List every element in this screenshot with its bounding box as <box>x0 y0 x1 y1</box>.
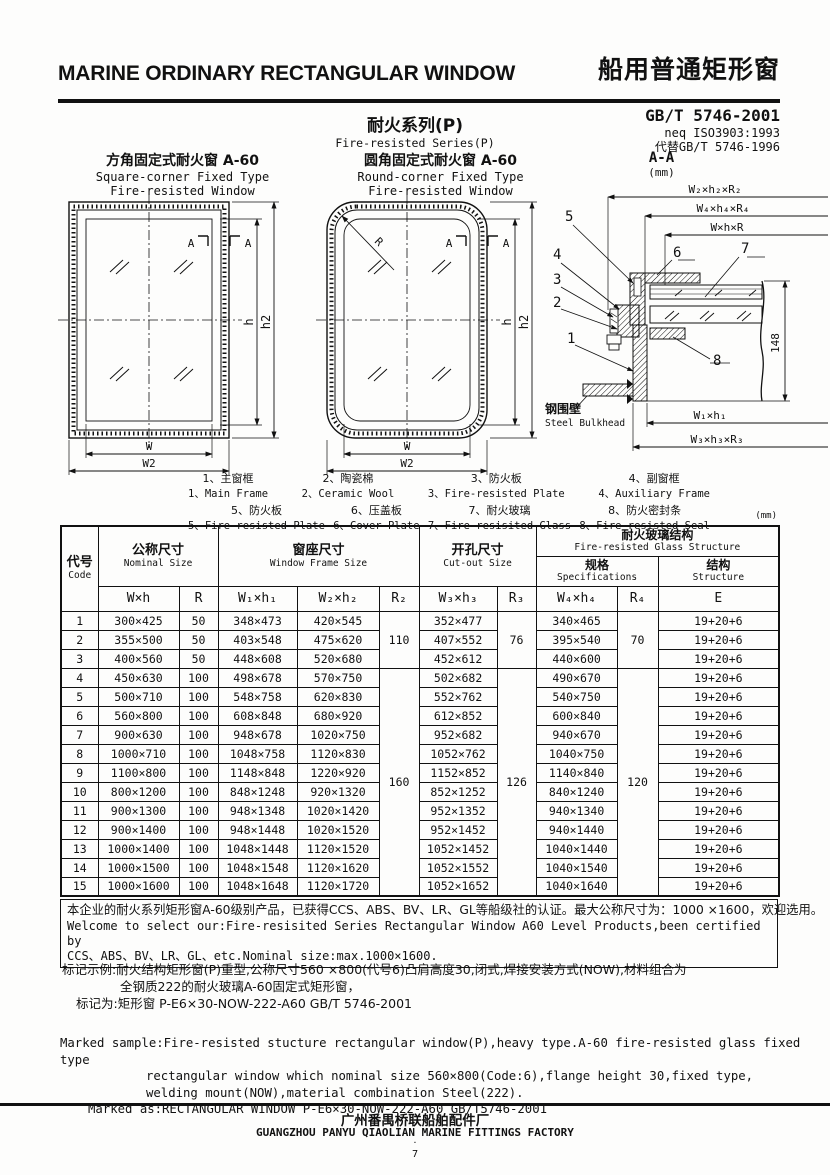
legend-item: 2、陶瓷棉2、Ceramic Wool <box>302 470 395 501</box>
svg-text:8: 8 <box>713 353 721 369</box>
svg-text:A: A <box>245 237 252 250</box>
table-cell: 612×852 <box>419 706 497 725</box>
col-header-structure: 结构 Structure <box>658 556 779 586</box>
table-cell: 448×608 <box>218 649 297 668</box>
legend-item: 4、副窗框4、Auxiliary Frame <box>598 470 710 501</box>
table-cell: 100 <box>179 839 218 858</box>
table-cell: 19+20+6 <box>658 668 779 687</box>
svg-text:A: A <box>188 237 195 250</box>
round-window-drawing: R A A h h2 <box>318 198 563 478</box>
page-title-cn: 船用普通矩形窗 <box>598 50 780 86</box>
table-cell: 452×612 <box>419 649 497 668</box>
table-cell: 4 <box>61 668 98 687</box>
svg-text:W: W <box>404 440 411 453</box>
table-cell: 395×540 <box>536 630 617 649</box>
table-cell: 100 <box>179 782 218 801</box>
col-w1h1: W₁×h₁ <box>218 586 297 611</box>
table-cell: 948×1448 <box>218 820 297 839</box>
table-cell: 126 <box>497 668 536 896</box>
table-cell: 352×477 <box>419 611 497 630</box>
table-cell: 1000×1500 <box>98 858 179 877</box>
series-title: 耐火系列(P) Fire-resisted Series(P) <box>0 111 830 150</box>
steel-bulkhead-label: 钢围壁 Steel Bulkhead <box>545 396 625 429</box>
table-cell: 10 <box>61 782 98 801</box>
table-cell: 440×600 <box>536 649 617 668</box>
table-cell: 1120×830 <box>297 744 379 763</box>
table-row: 91100×8001001148×8481220×9201152×8521140… <box>61 763 779 782</box>
table-cell: 1040×1640 <box>536 877 617 896</box>
col-w4h4: W₄×h₄ <box>536 586 617 611</box>
table-cell: 1220×920 <box>297 763 379 782</box>
table-cell: 14 <box>61 858 98 877</box>
table-cell: 100 <box>179 801 218 820</box>
table-cell: 348×473 <box>218 611 297 630</box>
square-window-title-cn: 方角固定式耐火窗 A-60 <box>60 150 305 170</box>
table-cell: 852×1252 <box>419 782 497 801</box>
svg-text:A: A <box>503 237 510 250</box>
svg-text:1: 1 <box>567 331 575 347</box>
table-cell: 1020×750 <box>297 725 379 744</box>
table-cell: 19+20+6 <box>658 820 779 839</box>
table-row: 11900×1300100948×13481020×1420952×135294… <box>61 801 779 820</box>
table-cell: 1048×1648 <box>218 877 297 896</box>
square-window-drawing: A A h h2 W W2 <box>60 198 305 478</box>
table-cell: 1048×1548 <box>218 858 297 877</box>
table-row: 12900×1400100948×14481020×1520952×145294… <box>61 820 779 839</box>
table-cell: 940×1340 <box>536 801 617 820</box>
table-cell: 1120×1520 <box>297 839 379 858</box>
table-cell: 50 <box>179 630 218 649</box>
table-cell: 1048×758 <box>218 744 297 763</box>
svg-text:W₂×h₂×R₂: W₂×h₂×R₂ <box>689 183 742 196</box>
table-cell: 900×1400 <box>98 820 179 839</box>
table-row: 141000×15001001048×15481120×16201052×155… <box>61 858 779 877</box>
table-cell: 1020×1520 <box>297 820 379 839</box>
table-cell: 940×670 <box>536 725 617 744</box>
col-r4: R₄ <box>617 586 658 611</box>
table-cell: 1120×1620 <box>297 858 379 877</box>
table-cell: 120 <box>617 668 658 896</box>
glass-symbol <box>110 260 193 381</box>
size-table: 代号 Code 公称尺寸 Nominal Size 窗座尺寸 Window Fr… <box>60 525 780 897</box>
col-w3h3: W₃×h₃ <box>419 586 497 611</box>
col-header-nominal: 公称尺寸 Nominal Size <box>98 526 218 586</box>
table-cell: 952×1352 <box>419 801 497 820</box>
table-cell: 3 <box>61 649 98 668</box>
section-unit: (mm) <box>545 166 778 179</box>
table-cell: 2 <box>61 630 98 649</box>
svg-text:Steel Bulkhead: Steel Bulkhead <box>545 418 625 429</box>
svg-text:A: A <box>446 237 453 250</box>
table-cell: 1100×800 <box>98 763 179 782</box>
note-line-cn: 本企业的耐火系列矩形窗A-60级别产品，已获得CCS、ABS、BV、LR、GL等… <box>67 902 771 919</box>
table-cell: 100 <box>179 706 218 725</box>
table-row: 10800×1200100848×1248920×1320852×1252840… <box>61 782 779 801</box>
col-r: R <box>179 586 218 611</box>
svg-text:h2: h2 <box>517 315 531 329</box>
table-cell: 19+20+6 <box>658 725 779 744</box>
marking-example-cn: 标记示例:耐火结构矩形窗(P)重型,公称尺寸560 ×800(代号6)凸肩高度3… <box>62 961 686 1012</box>
table-cell: 1000×1600 <box>98 877 179 896</box>
svg-text:h: h <box>242 319 256 326</box>
svg-text:钢围壁: 钢围壁 <box>545 401 581 416</box>
radius-leader: R <box>342 216 394 270</box>
svg-text:R: R <box>372 235 386 249</box>
table-cell: 620×830 <box>297 687 379 706</box>
table-cell: 19+20+6 <box>658 687 779 706</box>
header: MARINE ORDINARY RECTANGULAR WINDOW 船用普通矩… <box>58 50 780 86</box>
table-cell: 110 <box>379 611 419 668</box>
table-cell: 19+20+6 <box>658 839 779 858</box>
svg-text:W₁×h₁: W₁×h₁ <box>693 409 726 422</box>
table-row: 1300×42550348×473420×545110352×47776340×… <box>61 611 779 630</box>
svg-text:3: 3 <box>553 272 561 288</box>
table-cell: 420×545 <box>297 611 379 630</box>
section-cut-marks: A A <box>446 236 510 250</box>
svg-text:4: 4 <box>553 247 561 263</box>
table-cell: 19+20+6 <box>658 611 779 630</box>
section-drawing: W₂×h₂×R₂ W₄×h₄×R₄ W×h×R <box>545 185 830 457</box>
table-cell: 1052×1452 <box>419 839 497 858</box>
table-cell: 502×682 <box>419 668 497 687</box>
table-cell: 1 <box>61 611 98 630</box>
square-window-block: 方角固定式耐火窗 A-60 Square-corner Fixed Type F… <box>60 150 305 478</box>
col-header-cutout: 开孔尺寸 Cut-out Size <box>419 526 536 586</box>
col-header-code: 代号 Code <box>61 526 98 611</box>
table-cell: 6 <box>61 706 98 725</box>
col-e: E <box>658 586 779 611</box>
table-cell: 1052×762 <box>419 744 497 763</box>
table-cell: 952×682 <box>419 725 497 744</box>
svg-text:5: 5 <box>565 209 573 225</box>
table-cell: 848×1248 <box>218 782 297 801</box>
table-cell: 1040×750 <box>536 744 617 763</box>
table-cell: 840×1240 <box>536 782 617 801</box>
table-cell: 500×710 <box>98 687 179 706</box>
table-cell: 498×678 <box>218 668 297 687</box>
table-cell: 340×465 <box>536 611 617 630</box>
round-window-title-cn: 圆角固定式耐火窗 A-60 <box>318 150 563 170</box>
title-rule <box>58 99 780 103</box>
table-cell: 548×758 <box>218 687 297 706</box>
table-row: 6560×800100608×848680×920612×852600×8401… <box>61 706 779 725</box>
col-header-frame: 窗座尺寸 Window Frame Size <box>218 526 419 586</box>
svg-text:W₃×h₃×R₃: W₃×h₃×R₃ <box>691 433 744 446</box>
table-cell: 7 <box>61 725 98 744</box>
table-row: 151000×16001001048×16481120×17201052×165… <box>61 877 779 896</box>
catalog-page: MARINE ORDINARY RECTANGULAR WINDOW 船用普通矩… <box>0 0 830 1175</box>
table-cell: 608×848 <box>218 706 297 725</box>
legend-row-1: 1、主窗框1、Main Frame2、陶瓷棉2、Ceramic Wool3、防火… <box>188 470 710 501</box>
table-cell: 540×750 <box>536 687 617 706</box>
table-cell: 520×680 <box>297 649 379 668</box>
table-cell: 300×425 <box>98 611 179 630</box>
round-window-block: 圆角固定式耐火窗 A-60 Round-corner Fixed Type Fi… <box>318 150 563 478</box>
table-row: 7900×630100948×6781020×750952×682940×670… <box>61 725 779 744</box>
table-cell: 450×630 <box>98 668 179 687</box>
table-cell: 920×1320 <box>297 782 379 801</box>
table-cell: 1120×1720 <box>297 877 379 896</box>
table-cell: 12 <box>61 820 98 839</box>
table-cell: 1000×710 <box>98 744 179 763</box>
col-header-glass: 耐火玻璃结构 Fire-resisted Glass Structure <box>536 526 779 556</box>
table-unit-note: (mm) <box>755 511 777 521</box>
table-cell: 400×560 <box>98 649 179 668</box>
table-cell: 900×1300 <box>98 801 179 820</box>
table-cell: 940×1440 <box>536 820 617 839</box>
section-block: A-A (mm) W₂×h₂×R₂ W₄×h₄×R₄ <box>545 150 830 457</box>
table-cell: 8 <box>61 744 98 763</box>
table-cell: 100 <box>179 858 218 877</box>
table-cell: 952×1452 <box>419 820 497 839</box>
table-cell: 13 <box>61 839 98 858</box>
table-cell: 560×800 <box>98 706 179 725</box>
table-cell: 19+20+6 <box>658 649 779 668</box>
table-cell: 9 <box>61 763 98 782</box>
frame-section <box>583 273 764 404</box>
table-cell: 948×678 <box>218 725 297 744</box>
table-row: 4450×630100498×678570×750160502×68212649… <box>61 668 779 687</box>
table-cell: 100 <box>179 744 218 763</box>
dimension-w3h3r3: W₃×h₃×R₃ <box>633 403 828 451</box>
table-cell: 355×500 <box>98 630 179 649</box>
table-cell: 1148×848 <box>218 763 297 782</box>
table-cell: 70 <box>617 611 658 668</box>
col-w2h2: W₂×h₂ <box>297 586 379 611</box>
svg-text:2: 2 <box>553 295 561 311</box>
size-table-body: 1300×42550348×473420×545110352×47776340×… <box>61 611 779 896</box>
table-cell: 5 <box>61 687 98 706</box>
table-cell: 100 <box>179 877 218 896</box>
table-row: 81000×7101001048×7581120×8301052×7621040… <box>61 744 779 763</box>
table-cell: 19+20+6 <box>658 801 779 820</box>
table-cell: 1048×1448 <box>218 839 297 858</box>
table-cell: 76 <box>497 611 536 668</box>
table-cell: 100 <box>179 763 218 782</box>
table-cell: 160 <box>379 668 419 896</box>
svg-text:W×h×R: W×h×R <box>710 221 743 234</box>
table-row: 131000×14001001048×14481120×15201052×145… <box>61 839 779 858</box>
table-cell: 1040×1540 <box>536 858 617 877</box>
table-cell: 1152×852 <box>419 763 497 782</box>
table-cell: 19+20+6 <box>658 630 779 649</box>
svg-text:W2: W2 <box>142 457 155 470</box>
table-cell: 19+20+6 <box>658 763 779 782</box>
table-cell: 50 <box>179 611 218 630</box>
svg-text:h2: h2 <box>259 315 273 329</box>
svg-text:W₄×h₄×R₄: W₄×h₄×R₄ <box>697 202 750 215</box>
table-cell: 19+20+6 <box>658 744 779 763</box>
page-title-en: MARINE ORDINARY RECTANGULAR WINDOW <box>58 62 515 86</box>
table-cell: 1040×1440 <box>536 839 617 858</box>
table-row: 2355×50050403×548475×620407×552395×54019… <box>61 630 779 649</box>
section-cut-marks: A A <box>188 236 252 250</box>
table-cell: 948×1348 <box>218 801 297 820</box>
table-cell: 1000×1400 <box>98 839 179 858</box>
table-cell: 475×620 <box>297 630 379 649</box>
table-cell: 570×750 <box>297 668 379 687</box>
svg-text:h: h <box>500 319 514 326</box>
table-cell: 100 <box>179 668 218 687</box>
table-cell: 19+20+6 <box>658 706 779 725</box>
col-header-spec: 规格 Specifications <box>536 556 658 586</box>
col-r2: R₂ <box>379 586 419 611</box>
table-cell: 900×630 <box>98 725 179 744</box>
table-cell: 100 <box>179 725 218 744</box>
svg-text:6: 6 <box>673 245 681 261</box>
table-cell: 11 <box>61 801 98 820</box>
table-cell: 50 <box>179 649 218 668</box>
svg-text:W2: W2 <box>400 457 413 470</box>
table-cell: 1020×1420 <box>297 801 379 820</box>
legend-item: 3、防火板3、Fire-resisted Plate <box>428 470 565 501</box>
table-cell: 1140×840 <box>536 763 617 782</box>
table-cell: 1052×1552 <box>419 858 497 877</box>
svg-text:W: W <box>146 440 153 453</box>
dimension-w1h1: W₁×h₁ <box>647 403 828 427</box>
footer-rule <box>0 1103 830 1106</box>
glass-symbol <box>368 260 451 381</box>
table-cell: 800×1200 <box>98 782 179 801</box>
certification-note: 本企业的耐火系列矩形窗A-60级别产品，已获得CCS、ABS、BV、LR、GL等… <box>60 899 778 968</box>
table-cell: 680×920 <box>297 706 379 725</box>
section-title: A-A <box>545 150 778 166</box>
legend-item: 1、主窗框1、Main Frame <box>188 470 268 501</box>
table-cell: 15 <box>61 877 98 896</box>
table-cell: 100 <box>179 820 218 839</box>
table-cell: 600×840 <box>536 706 617 725</box>
col-r3: R₃ <box>497 586 536 611</box>
table-cell: 490×670 <box>536 668 617 687</box>
svg-text:7: 7 <box>741 241 749 257</box>
col-wh: W×h <box>98 586 179 611</box>
page-number: · 7 <box>0 1139 830 1160</box>
table-cell: 19+20+6 <box>658 782 779 801</box>
table-cell: 552×762 <box>419 687 497 706</box>
table-row: 5500×710100548×758620×830552×762540×7501… <box>61 687 779 706</box>
table-cell: 1052×1652 <box>419 877 497 896</box>
table-cell: 19+20+6 <box>658 877 779 896</box>
table-cell: 407×552 <box>419 630 497 649</box>
svg-text:148: 148 <box>769 333 782 353</box>
table-cell: 403×548 <box>218 630 297 649</box>
table-cell: 100 <box>179 687 218 706</box>
table-row: 3400×56050448×608520×680452×612440×60019… <box>61 649 779 668</box>
table-cell: 19+20+6 <box>658 858 779 877</box>
